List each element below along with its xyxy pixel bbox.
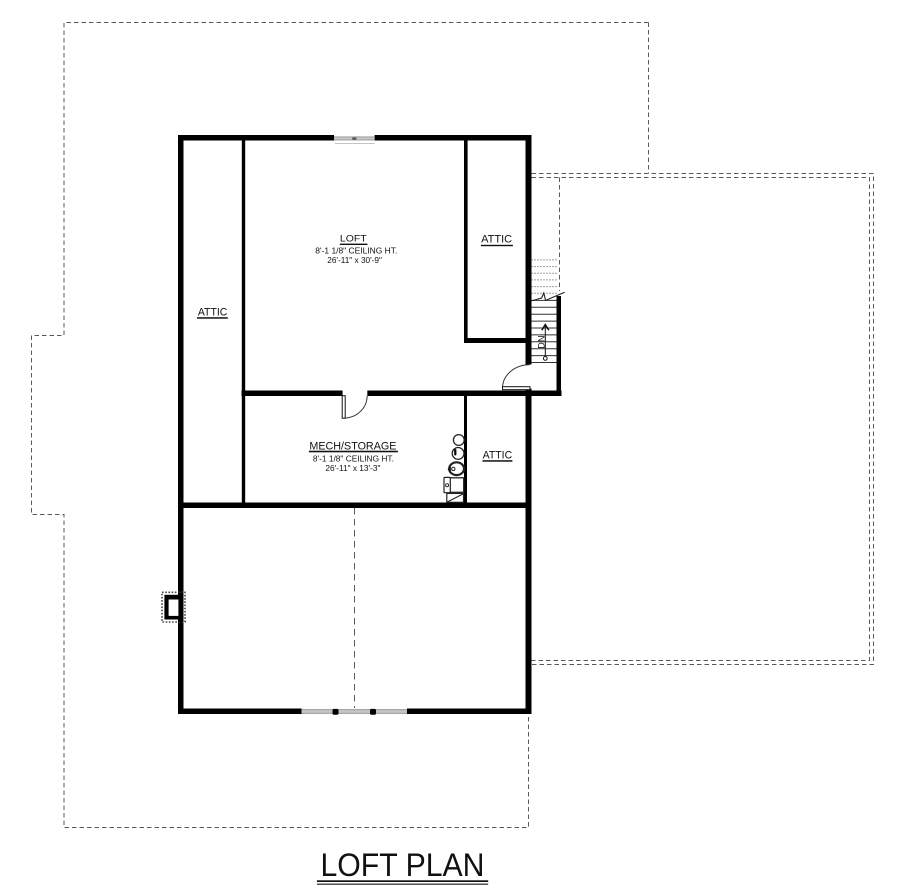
svg-text:26'-11" x 13'-3": 26'-11" x 13'-3" xyxy=(325,463,380,473)
svg-text:LOFT PLAN: LOFT PLAN xyxy=(321,847,485,883)
svg-text:LOFT: LOFT xyxy=(340,234,367,245)
svg-text:MECH/STORAGE: MECH/STORAGE xyxy=(309,440,396,452)
svg-text:ATTIC: ATTIC xyxy=(483,450,513,462)
svg-text:ATTIC: ATTIC xyxy=(198,307,228,319)
svg-text:26'-11" x 30'-9": 26'-11" x 30'-9" xyxy=(327,255,382,265)
svg-text:ATTIC: ATTIC xyxy=(481,233,512,245)
svg-text:DN: DN xyxy=(536,335,546,349)
svg-text:8'-1 1/8" CEILING HT.: 8'-1 1/8" CEILING HT. xyxy=(313,453,394,463)
